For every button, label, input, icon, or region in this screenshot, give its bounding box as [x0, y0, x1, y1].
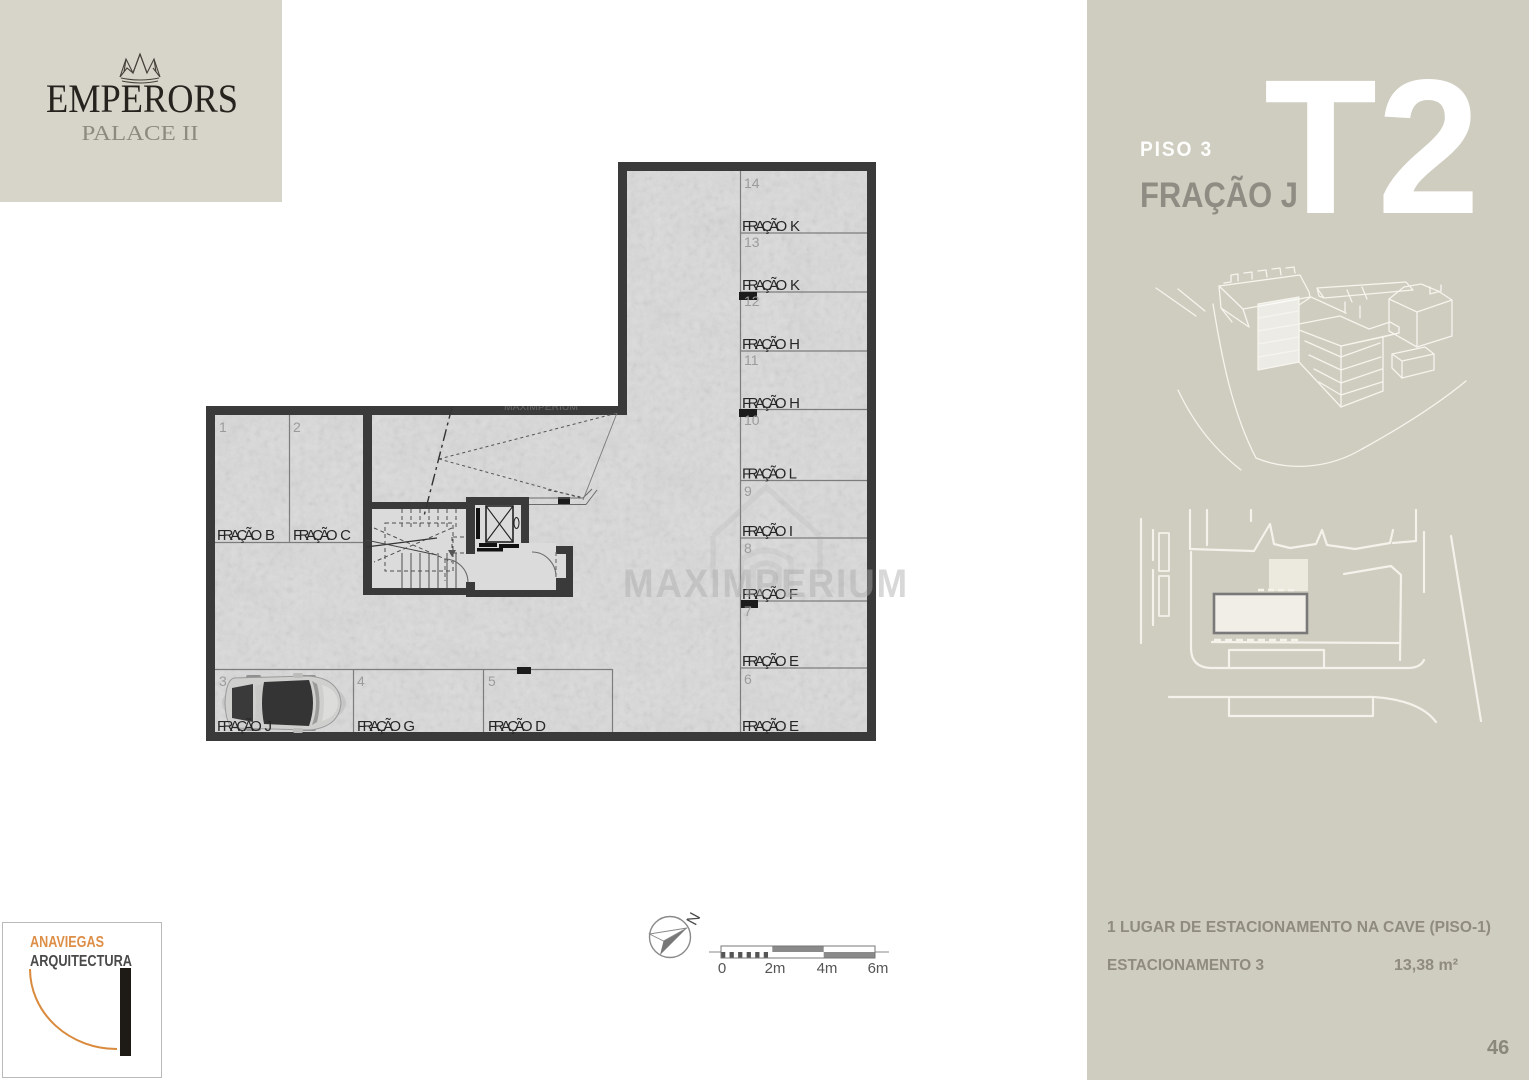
svg-text:13: 13 — [744, 234, 760, 250]
svg-text:10: 10 — [744, 412, 760, 428]
svg-text:ANAVIEGAS: ANAVIEGAS — [30, 934, 104, 951]
svg-text:ESTACIONAMENTO 3: ESTACIONAMENTO 3 — [1107, 957, 1264, 974]
svg-text:PALACE II: PALACE II — [82, 121, 199, 145]
svg-text:EMPERORS: EMPERORS — [46, 76, 238, 121]
svg-text:FRAÇÃO B: FRAÇÃO B — [217, 527, 275, 544]
svg-text:1 LUGAR DE ESTACIONAMENTO NA C: 1 LUGAR DE ESTACIONAMENTO NA CAVE (PISO-… — [1107, 919, 1491, 936]
svg-text:0: 0 — [718, 960, 726, 977]
svg-text:FRAÇÃO E: FRAÇÃO E — [742, 718, 799, 735]
svg-text:T2: T2 — [1264, 39, 1480, 254]
svg-text:14: 14 — [744, 175, 760, 191]
svg-text:13,38 m²: 13,38 m² — [1394, 957, 1458, 974]
svg-text:FRAÇÃO J: FRAÇÃO J — [217, 718, 272, 735]
svg-text:2: 2 — [293, 419, 301, 435]
svg-text:FRAÇÃO K: FRAÇÃO K — [742, 218, 800, 235]
svg-text:FRAÇÃO H: FRAÇÃO H — [742, 336, 800, 353]
svg-text:4: 4 — [357, 673, 365, 689]
svg-text:FRAÇÃO D: FRAÇÃO D — [488, 718, 546, 735]
svg-text:ARQUITECTURA: ARQUITECTURA — [30, 953, 132, 970]
svg-text:2m: 2m — [765, 960, 786, 977]
svg-text:46: 46 — [1487, 1037, 1509, 1059]
svg-text:FRAÇÃO L: FRAÇÃO L — [742, 466, 797, 483]
svg-text:6m: 6m — [868, 960, 889, 977]
svg-text:9: 9 — [744, 483, 752, 499]
svg-text:6: 6 — [744, 671, 752, 687]
svg-text:MAXIMPERIUM: MAXIMPERIUM — [504, 402, 578, 412]
svg-text:MAXIMPERIUM: MAXIMPERIUM — [623, 562, 909, 606]
svg-text:4m: 4m — [817, 960, 838, 977]
svg-text:3: 3 — [219, 673, 227, 689]
svg-text:FRAÇÃO K: FRAÇÃO K — [742, 277, 800, 294]
svg-text:5: 5 — [488, 673, 496, 689]
svg-text:FRAÇÃO I: FRAÇÃO I — [742, 523, 793, 540]
svg-text:FRAÇÃO E: FRAÇÃO E — [742, 653, 799, 670]
svg-text:11: 11 — [744, 352, 759, 368]
svg-text:1: 1 — [219, 419, 227, 435]
svg-text:FRAÇÃO G: FRAÇÃO G — [357, 718, 415, 735]
svg-text:12: 12 — [744, 293, 760, 309]
svg-text:FRAÇÃO C: FRAÇÃO C — [293, 527, 351, 544]
svg-text:FRAÇÃO H: FRAÇÃO H — [742, 395, 800, 412]
svg-text:PISO 3: PISO 3 — [1140, 138, 1213, 161]
